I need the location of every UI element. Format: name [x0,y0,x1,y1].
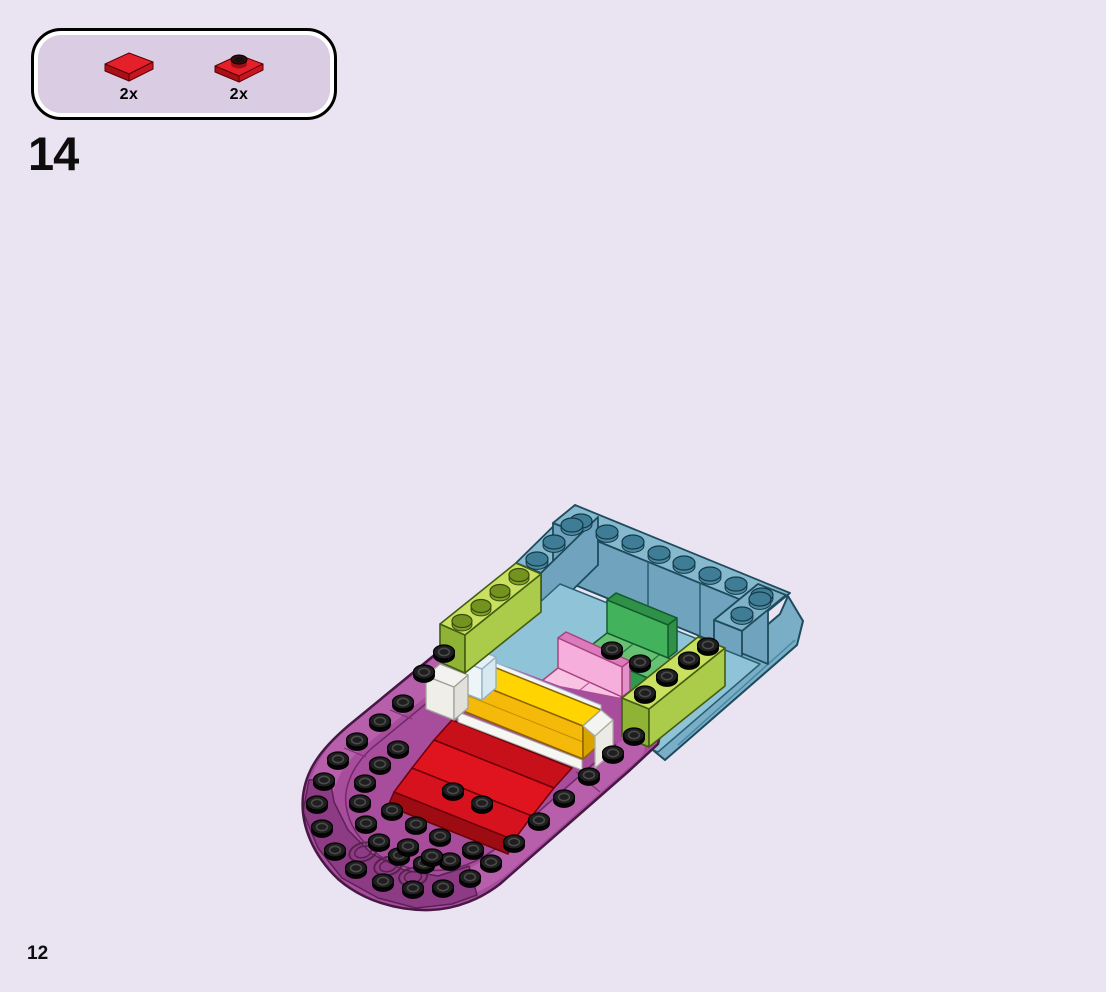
black-stud [635,686,656,703]
black-stud [579,768,600,785]
black-stud [350,795,371,812]
red-plate-1x2-with-stud-icon [210,49,268,85]
black-stud [382,803,403,820]
black-stud [460,870,481,887]
black-stud [422,849,443,866]
lime-stud [490,585,510,601]
part-red-tile-1x2: 2x [100,49,158,103]
black-stud [430,829,451,846]
black-stud [481,855,502,872]
boat-model-illustration [0,0,1106,992]
red-tile-1x2-icon [100,49,158,85]
black-stud [356,816,377,833]
teal-stud [699,567,721,584]
teal-stud [596,525,618,542]
part-count-label: 2x [120,87,139,103]
black-stud [433,880,454,897]
black-stud [312,820,333,837]
black-stud [393,695,414,712]
black-stud [602,642,623,659]
teal-stud [561,518,583,535]
black-stud [434,645,455,662]
black-stud [307,796,328,813]
teal-stud [673,556,695,573]
black-stud [679,652,700,669]
part-red-plate-1x2-with-stud: 2x [210,49,268,103]
black-stud [472,796,493,813]
black-stud [554,790,575,807]
teal-stud [725,577,747,594]
black-stud [346,861,367,878]
lime-stud [509,569,529,585]
black-stud [443,783,464,800]
teal-stud [749,592,771,609]
lime-stud [471,600,491,616]
teal-stud [648,546,670,563]
black-stud [369,834,390,851]
black-stud [347,733,368,750]
teal-stud [622,535,644,552]
black-stud [698,638,719,655]
parts-callout-panel: 2x 2x [38,35,330,113]
black-stud [328,752,349,769]
page-number: 12 [27,944,48,963]
black-stud [314,773,335,790]
black-stud [630,655,651,672]
black-stud [373,874,394,891]
black-stud [463,842,484,859]
black-stud [398,839,419,856]
step-number: 14 [28,130,78,177]
black-stud [624,728,645,745]
parts-callout-box: 2x 2x [31,28,337,120]
black-stud [504,835,525,852]
teal-stud [731,607,753,624]
teal-stud [543,535,565,552]
lime-stud [452,615,472,631]
black-stud [603,746,624,763]
black-stud [388,741,409,758]
instruction-page: 2x 2x 14 12 [0,0,1106,992]
black-stud [657,669,678,686]
black-stud [325,843,346,860]
black-stud [370,757,391,774]
black-stud [529,813,550,830]
teal-stud [526,552,548,569]
part-count-label: 2x [230,87,249,103]
black-stud [370,714,391,731]
black-stud [403,881,424,898]
black-stud [406,817,427,834]
black-stud [414,665,435,682]
black-stud [355,775,376,792]
